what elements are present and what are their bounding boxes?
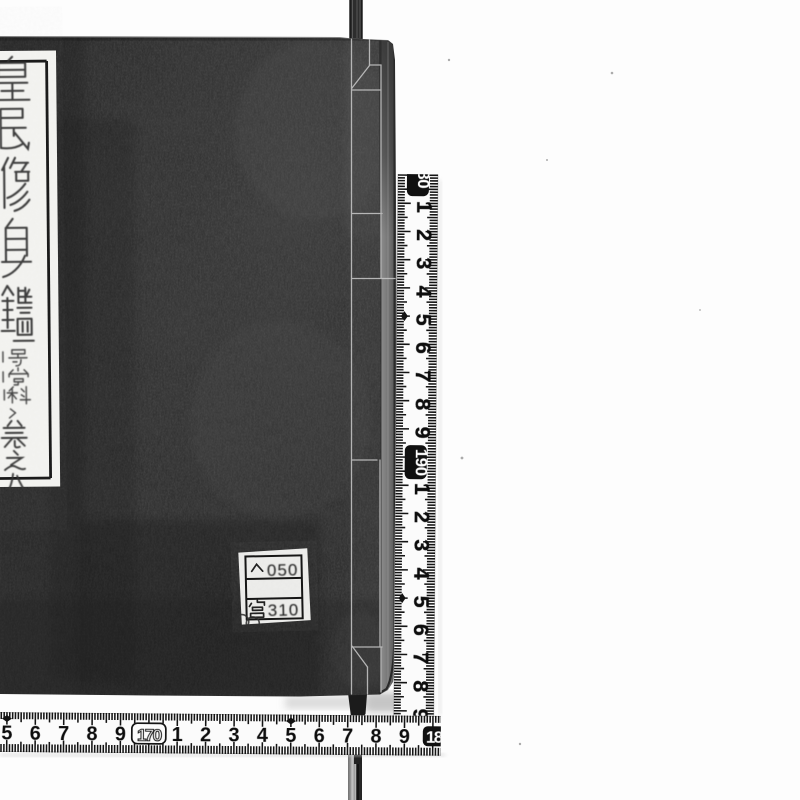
svg-text:8: 8 bbox=[86, 723, 97, 745]
svg-text:4: 4 bbox=[409, 567, 433, 579]
svg-text:5: 5 bbox=[1, 723, 12, 745]
svg-text:1: 1 bbox=[410, 483, 434, 495]
svg-text:2: 2 bbox=[412, 229, 436, 241]
svg-text:8: 8 bbox=[411, 398, 435, 410]
svg-text:2: 2 bbox=[200, 724, 211, 746]
svg-text:5: 5 bbox=[409, 596, 433, 608]
svg-text:2: 2 bbox=[410, 511, 434, 523]
svg-text:1: 1 bbox=[172, 724, 183, 746]
svg-text:7: 7 bbox=[411, 370, 435, 382]
svg-text:5: 5 bbox=[285, 725, 296, 747]
svg-text:310: 310 bbox=[268, 600, 300, 620]
svg-text:6: 6 bbox=[30, 723, 41, 745]
svg-text:9: 9 bbox=[115, 724, 126, 746]
svg-text:3: 3 bbox=[228, 724, 239, 746]
svg-text:7: 7 bbox=[58, 723, 69, 745]
svg-text:050: 050 bbox=[267, 560, 299, 580]
svg-text:4: 4 bbox=[257, 725, 269, 747]
svg-text:7: 7 bbox=[342, 725, 353, 747]
svg-text:170: 170 bbox=[137, 726, 162, 745]
svg-text:1: 1 bbox=[412, 201, 436, 213]
svg-text:4: 4 bbox=[412, 285, 436, 297]
svg-text:190: 190 bbox=[412, 449, 431, 476]
svg-text:3: 3 bbox=[412, 257, 436, 269]
svg-text:9: 9 bbox=[410, 426, 434, 438]
svg-text:7: 7 bbox=[409, 652, 433, 664]
svg-text:8: 8 bbox=[408, 680, 432, 692]
svg-text:6: 6 bbox=[411, 342, 435, 354]
svg-text:6: 6 bbox=[409, 624, 433, 636]
svg-text:5: 5 bbox=[411, 314, 435, 326]
svg-text:3: 3 bbox=[410, 539, 434, 551]
svg-text:8: 8 bbox=[370, 726, 381, 748]
svg-text:9: 9 bbox=[399, 726, 410, 748]
svg-text:6: 6 bbox=[314, 725, 325, 747]
